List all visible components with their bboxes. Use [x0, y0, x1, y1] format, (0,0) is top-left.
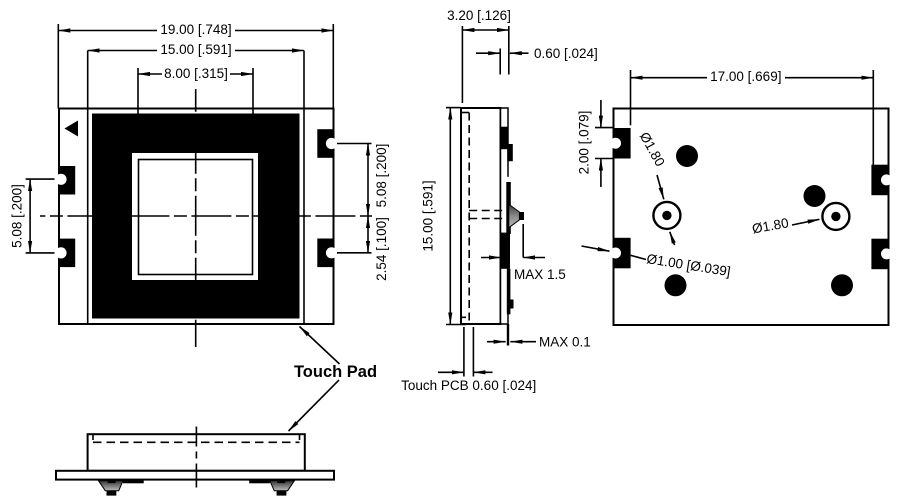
- svg-text:Touch Pad: Touch Pad: [294, 363, 377, 381]
- svg-text:MAX 0.1: MAX 0.1: [539, 335, 591, 350]
- svg-text:19.00 [.748]: 19.00 [.748]: [160, 22, 231, 37]
- svg-text:17.00 [.669]: 17.00 [.669]: [710, 69, 781, 84]
- svg-text:MAX 1.5: MAX 1.5: [514, 267, 566, 282]
- svg-text:15.00 [.591]: 15.00 [.591]: [420, 180, 435, 251]
- svg-text:8.00 [.315]: 8.00 [.315]: [164, 66, 228, 81]
- svg-text:15.00 [.591]: 15.00 [.591]: [160, 42, 231, 57]
- svg-text:2.54 [.100]: 2.54 [.100]: [374, 217, 389, 281]
- svg-text:2.00 [.079]: 2.00 [.079]: [576, 111, 591, 175]
- svg-text:5.08 [.200]: 5.08 [.200]: [374, 144, 389, 208]
- svg-text:0.60 [.024]: 0.60 [.024]: [534, 46, 598, 61]
- svg-text:Touch PCB 0.60 [.024]: Touch PCB 0.60 [.024]: [401, 378, 536, 393]
- svg-text:5.08 [.200]: 5.08 [.200]: [9, 184, 24, 248]
- svg-text:3.20 [.126]: 3.20 [.126]: [447, 8, 511, 23]
